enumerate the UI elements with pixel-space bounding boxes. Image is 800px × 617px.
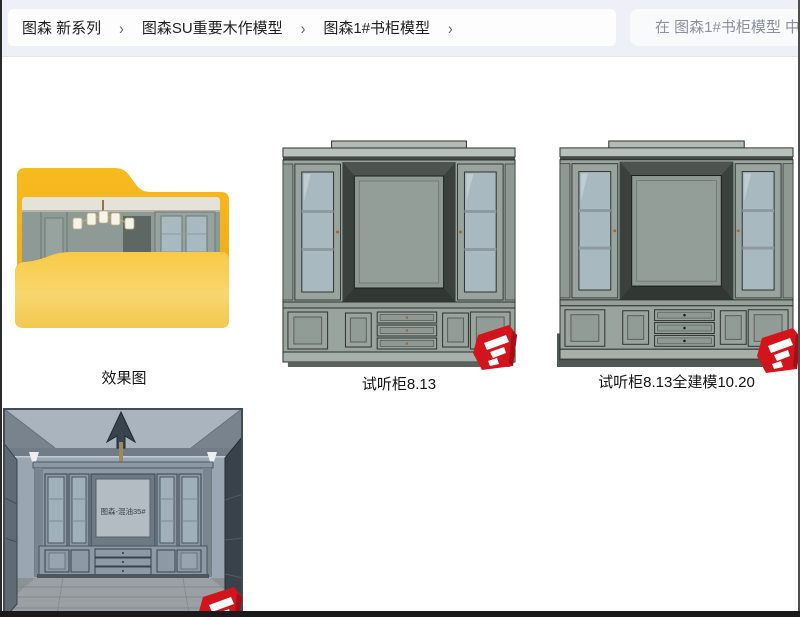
file-grid: 效果图 [0, 57, 800, 610]
sketchup-logo-icon [470, 322, 520, 372]
file-name: 试听柜8.13 [280, 376, 518, 393]
folder-item-render-images[interactable]: 效果图 [15, 160, 233, 387]
su-file-av-cabinet-813[interactable]: 试听柜8.13 [280, 140, 518, 393]
folder-icon [15, 160, 233, 335]
breadcrumb-item-tusen-new-series[interactable]: 图森 新系列 [22, 17, 101, 38]
chevron-right-icon: › [301, 18, 306, 37]
thumbnail-watermark-text: 图森-混油35# [100, 506, 146, 516]
chevron-right-icon: › [448, 18, 453, 37]
file-explorer-window: 图森 新系列 › 图森SU重要木作模型 › 图森1#书柜模型 › [0, 0, 800, 617]
window-bottom-edge [0, 611, 800, 617]
sketchup-logo-icon [754, 325, 800, 375]
window-left-edge [0, 0, 2, 617]
toolbar: 图森 新系列 › 图森SU重要木作模型 › 图森1#书柜模型 › [0, 0, 800, 57]
breadcrumb-item-bookcase-model[interactable]: 图森1#书柜模型 [323, 17, 430, 38]
chevron-right-icon: › [119, 18, 124, 37]
file-name: 试听柜8.13全建模10.20 [557, 374, 796, 391]
su-file-bookcase-room-model[interactable]: 图森-混油35# [3, 408, 243, 617]
su-file-av-cabinet-full-model[interactable]: 试听柜8.13全建模10.20 [557, 140, 796, 391]
breadcrumb-item-su-woodwork-models[interactable]: 图森SU重要木作模型 [142, 17, 283, 38]
breadcrumb: 图森 新系列 › 图森SU重要木作模型 › 图森1#书柜模型 › [8, 9, 616, 46]
file-name: 效果图 [15, 370, 233, 387]
search-input[interactable] [630, 9, 800, 46]
search-box [630, 9, 800, 46]
